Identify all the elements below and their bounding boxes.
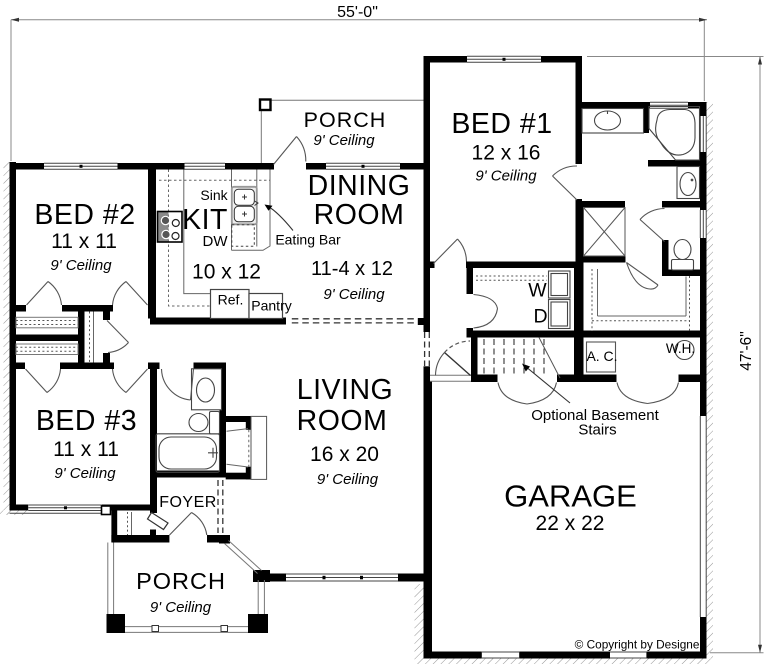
svg-text:11 x 11: 11 x 11	[53, 438, 119, 461]
svg-text:Stairs: Stairs	[578, 422, 616, 439]
svg-text:11-4 x 12: 11-4 x 12	[311, 258, 393, 280]
svg-text:9' Ceiling: 9' Ceiling	[150, 599, 212, 616]
svg-text:GARAGE: GARAGE	[504, 479, 637, 514]
svg-text:© Copyright by Designer: © Copyright by Designer	[575, 638, 704, 652]
svg-text:Eating Bar: Eating Bar	[275, 232, 341, 248]
svg-text:D: D	[533, 306, 547, 328]
svg-text:LIVING: LIVING	[297, 374, 393, 406]
svg-text:W.H.: W.H.	[666, 341, 695, 356]
svg-text:9' Ceiling: 9' Ceiling	[475, 168, 537, 185]
svg-text:ROOM: ROOM	[314, 199, 405, 231]
svg-text:FOYER: FOYER	[159, 494, 217, 511]
svg-text:BED #3: BED #3	[36, 405, 137, 437]
svg-text:Sink: Sink	[200, 187, 228, 203]
svg-text:Pantry: Pantry	[251, 298, 291, 314]
svg-text:BED #1: BED #1	[451, 108, 552, 140]
svg-text:55'-0": 55'-0"	[337, 4, 378, 21]
svg-text:9' Ceiling: 9' Ceiling	[54, 465, 116, 482]
svg-text:ROOM: ROOM	[297, 405, 388, 437]
svg-text:9' Ceiling: 9' Ceiling	[50, 257, 112, 274]
svg-text:PORCH: PORCH	[136, 568, 226, 594]
svg-text:22 x 22: 22 x 22	[536, 512, 605, 535]
svg-text:12 x 16: 12 x 16	[472, 142, 541, 165]
svg-text:A. C.: A. C.	[586, 348, 617, 364]
svg-text:16 x 20: 16 x 20	[310, 443, 379, 466]
svg-text:47'-6": 47'-6"	[738, 331, 755, 370]
svg-text:11 x 11: 11 x 11	[51, 230, 117, 253]
svg-text:BED #2: BED #2	[34, 199, 135, 231]
svg-text:W: W	[528, 280, 547, 302]
svg-text:KIT: KIT	[182, 204, 228, 236]
svg-text:9' Ceiling: 9' Ceiling	[313, 132, 375, 149]
svg-text:9' Ceiling: 9' Ceiling	[317, 471, 379, 488]
svg-text:PORCH: PORCH	[304, 108, 387, 132]
svg-text:9' Ceiling: 9' Ceiling	[323, 286, 385, 303]
svg-text:DW: DW	[203, 233, 229, 250]
svg-text:10 x 12: 10 x 12	[192, 261, 261, 284]
svg-text:DINING: DINING	[308, 170, 411, 202]
svg-text:Ref.: Ref.	[218, 292, 244, 308]
